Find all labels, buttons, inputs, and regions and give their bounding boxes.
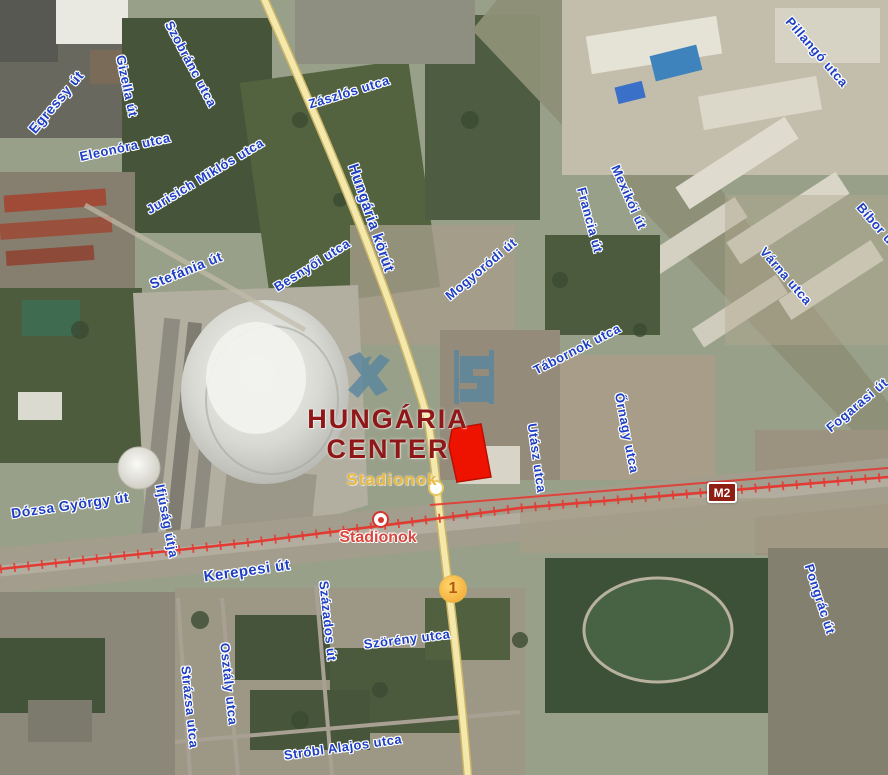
landmark-label: HUNGÁRIA CENTER bbox=[307, 404, 469, 464]
landmark-line1: HUNGÁRIA bbox=[307, 404, 469, 434]
stadionok-road-label: Stadionok bbox=[346, 470, 437, 490]
map-canvas[interactable]: Egressy útSzobránc utcaGizella útEleonór… bbox=[0, 0, 888, 775]
station-dot-icon bbox=[378, 517, 384, 523]
metro-line-badge: M2 bbox=[707, 482, 737, 503]
route-number-marker: 1 bbox=[439, 575, 467, 603]
metro-station-marker bbox=[372, 511, 389, 528]
landmark-line2: CENTER bbox=[307, 434, 469, 464]
satellite-art bbox=[0, 0, 888, 775]
station-name-label: Stadionok bbox=[339, 529, 416, 547]
